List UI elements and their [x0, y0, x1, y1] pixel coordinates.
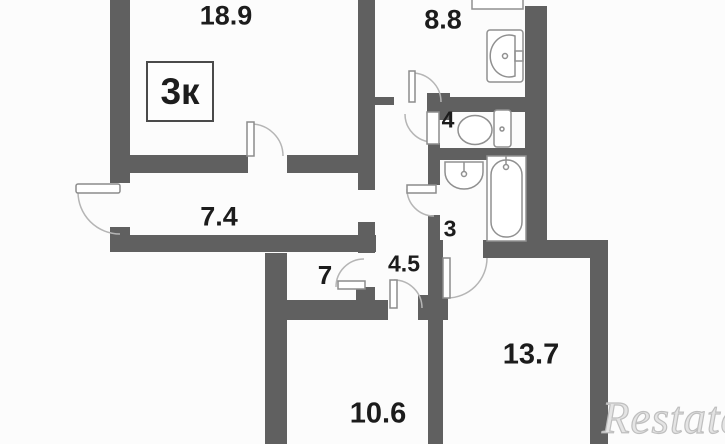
room-label-bathroom: 3 — [444, 218, 457, 241]
floorplan: 18.9 8.8 7.4 7 4.5 4 3 13.7 10.6 3к Rest… — [0, 0, 725, 444]
room-label-hallway: 7.4 — [200, 204, 238, 231]
kitchen-sink — [487, 30, 523, 82]
door-swing-arc — [447, 258, 487, 298]
room-label-wc: 4 — [442, 109, 455, 132]
kitchen-counter — [472, 0, 523, 9]
watermark: Restate — [602, 396, 725, 441]
bathtub — [487, 156, 526, 241]
wall-segment — [110, 235, 376, 252]
door-wc — [405, 112, 439, 144]
door-leaf — [407, 185, 436, 193]
floorplan-drawing — [0, 0, 725, 444]
wall-segment — [127, 155, 248, 173]
door-leaf — [409, 71, 415, 102]
wall-segment — [428, 258, 443, 444]
door-room-13 — [443, 258, 487, 298]
wash-basin — [445, 162, 483, 189]
room-label-kitchen: 8.8 — [424, 7, 462, 34]
apartment-type-badge: 3к — [146, 61, 214, 122]
door-swing-arc — [394, 280, 422, 308]
room-label-room-13: 13.7 — [503, 341, 559, 370]
wall-segment — [358, 0, 375, 190]
wall-segment — [358, 222, 375, 253]
room-label-storage: 7 — [318, 262, 332, 288]
door-leaf — [427, 112, 439, 144]
wall-segment — [374, 97, 394, 105]
door-living-room — [247, 122, 283, 156]
door-leaf — [247, 122, 254, 156]
door-bathroom — [407, 185, 436, 216]
apartment-type-label: 3к — [160, 71, 199, 113]
wall-segment — [483, 240, 608, 258]
door-swing-arc — [251, 124, 283, 156]
door-leaf — [443, 258, 450, 298]
door-leaf — [338, 281, 365, 289]
wall-segment — [287, 155, 358, 173]
wall-segment — [265, 253, 287, 444]
door-leaf — [76, 184, 120, 193]
room-label-room-10: 10.6 — [350, 400, 406, 429]
door-room-10 — [390, 280, 422, 308]
room-label-living-room: 18.9 — [200, 3, 253, 30]
door-storage — [336, 259, 365, 289]
wall-segment — [428, 240, 443, 258]
room-label-hall: 4.5 — [388, 253, 420, 276]
door-entry — [76, 184, 120, 234]
wall-segment — [525, 6, 547, 258]
door-leaf — [390, 280, 397, 308]
wall-segment — [428, 143, 440, 185]
toilet — [458, 110, 511, 147]
wall-segment — [265, 300, 388, 320]
fixtures — [445, 0, 526, 241]
